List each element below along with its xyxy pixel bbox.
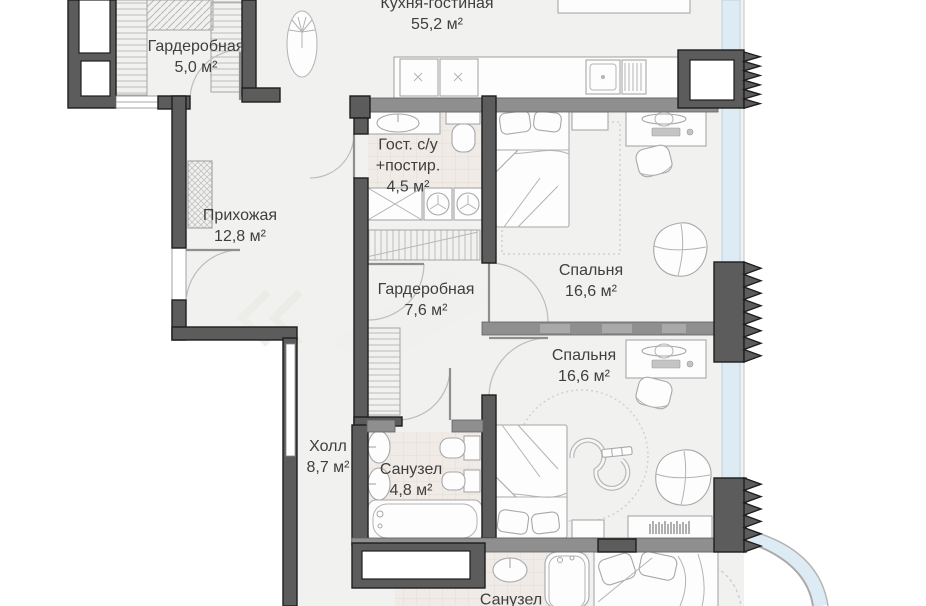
room-label-wardrobe-1: Гардеробная 5,0 м²: [148, 36, 245, 78]
room-area: 16,6 м²: [559, 281, 623, 302]
floor-plan: Гардеробная 5,0 м² Кухня-гостиная 55,2 м…: [0, 0, 926, 606]
insulation-zigzag: [744, 262, 761, 362]
dining-table: [558, 0, 690, 13]
kitchen-back-partition: [368, 98, 718, 112]
desk: [626, 340, 706, 378]
room-area: 4,8 м²: [380, 480, 442, 501]
hall-closet-shelf: [366, 328, 400, 415]
bed: [496, 108, 569, 227]
shaft-niche-2: [81, 61, 110, 96]
bathroom1-top-wall-left: [367, 420, 395, 432]
mouse: [687, 361, 693, 367]
shelf-unit-left: [114, 0, 147, 95]
bedroom1-left-wall: [482, 96, 496, 263]
nightstand: [572, 520, 604, 538]
beanbag: [656, 450, 711, 505]
room-name: Спальня: [552, 345, 616, 366]
room-name: Прихожая: [203, 205, 277, 226]
bathroom1-left-wall: [352, 425, 368, 545]
insulation-zigzag: [744, 52, 760, 108]
hall-wall-niche: [286, 344, 295, 456]
divider-hatch-1: [540, 324, 570, 333]
room-name: Гардеробная: [148, 36, 245, 57]
plant: [287, 11, 317, 77]
glazing-segment-top: [722, 0, 740, 52]
room-area: 4,5 м²: [376, 177, 441, 198]
washing-machine-2: [454, 188, 482, 220]
hanger-rail: [147, 0, 213, 30]
room-label-wardrobe-2: Гардеробная 7,6 м²: [378, 279, 475, 321]
vanity-counter: [368, 112, 440, 134]
bidet: [442, 470, 480, 492]
spine-pillar: [350, 96, 370, 118]
room-area: 16,6 м²: [552, 366, 616, 387]
glazing-segment-bedroom1: [722, 108, 740, 262]
room-area: 8,7 м²: [306, 457, 349, 478]
divider-hatch-3: [662, 324, 686, 333]
toilet-bowl: [452, 124, 475, 152]
room-name: Гардеробная: [378, 279, 475, 300]
spine-wall-top: [354, 118, 368, 134]
spine-wall-mid: [354, 178, 368, 425]
bottom-wall-dark-segment: [598, 539, 636, 552]
room-area: 5,0 м²: [148, 57, 245, 78]
sink-drain: [601, 75, 605, 79]
bed: [494, 425, 567, 538]
shaft-niche-1: [79, 0, 110, 53]
bedroom2-left-wall: [482, 395, 496, 538]
room-area: 7,6 м²: [378, 300, 475, 321]
desk: [626, 108, 706, 146]
wardrobe1-corner-wall: [242, 88, 280, 102]
room-name: Санузел: [380, 459, 442, 480]
facade-pillar-1: [678, 50, 760, 108]
room-label-guest-bathroom: Гост. с/у +постир. 4,5 м²: [376, 134, 441, 197]
divider-hatch-2: [602, 324, 632, 333]
beanbag: [654, 223, 707, 276]
room-area: 12,8 м²: [203, 226, 277, 247]
mouse: [687, 129, 693, 135]
room-label-bedroom-1: Спальня 16,6 м²: [559, 260, 623, 302]
room-label-hall: Холл 8,7 м²: [306, 436, 349, 478]
room-area: 55,2 м²: [380, 14, 493, 35]
bookshelf: [628, 516, 712, 540]
room-label-bathroom-2: Санузел: [480, 589, 542, 606]
room-name-2: +постир.: [376, 155, 441, 176]
room-name: Санузел: [480, 589, 542, 606]
hall-horizontal-wall: [172, 327, 297, 340]
room-name: Гост. с/у: [376, 134, 441, 155]
bathtub-vertical: [545, 552, 589, 606]
room-name: Спальня: [559, 260, 623, 281]
toilet: [440, 436, 480, 460]
room-label-entry-hallway: Прихожая 12,8 м²: [203, 205, 277, 247]
bedroom3-bed: [594, 551, 718, 606]
bathroom1-top-wall-right: [452, 420, 483, 432]
room-name: Холл: [306, 436, 349, 457]
toilet-tank: [446, 112, 480, 124]
keyboard: [652, 128, 680, 136]
room-name: Кухня-гостиная: [380, 0, 493, 14]
facade-pillar-2: [714, 262, 761, 362]
glazing-segment-bedroom2: [722, 362, 740, 478]
bathtub: [368, 500, 482, 542]
room-label-bedroom-2: Спальня 16,6 м²: [552, 345, 616, 387]
nightstand: [572, 112, 608, 130]
hallway-left-wall-upper: [172, 96, 186, 248]
dish-drainer: [622, 60, 646, 94]
room-label-bathroom-1: Санузел 4,8 м²: [380, 459, 442, 501]
room-label-kitchen-living: Кухня-гостиная 55,2 м²: [380, 0, 493, 35]
keyboard: [652, 360, 680, 368]
shaft-block-niche: [362, 551, 470, 579]
